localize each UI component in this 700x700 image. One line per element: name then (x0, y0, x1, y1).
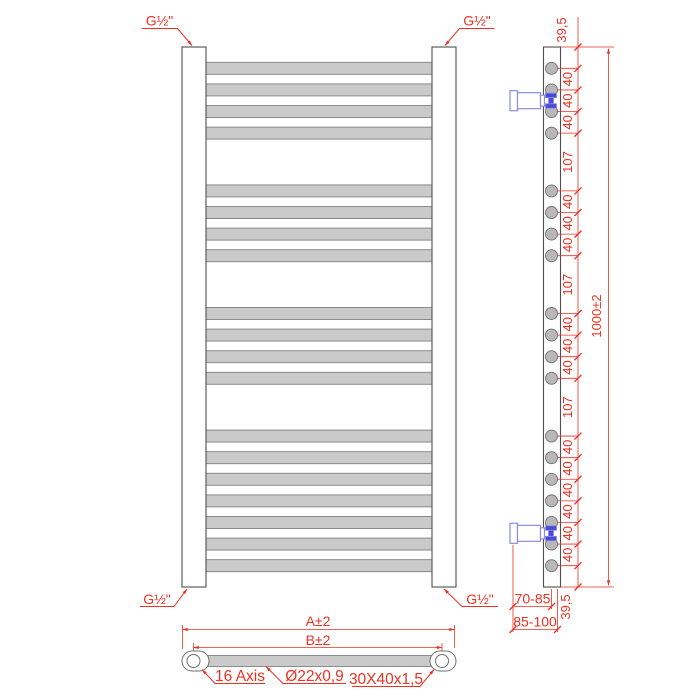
dimension-chain-label: 40 (560, 93, 575, 107)
wall-distance-min-label: 70-85 (515, 591, 551, 607)
towel-tube (206, 372, 433, 384)
dimension-chain-label: 40 (560, 360, 575, 374)
tube-cross-section (546, 560, 558, 572)
towel-tube (206, 495, 433, 507)
dimension-chain-label: 107 (560, 151, 575, 173)
fitting-label-bottom-right: G½" (466, 591, 494, 607)
tube-cross-section (546, 495, 558, 507)
towel-tube (206, 516, 433, 528)
valve-fitting-bottom (510, 523, 557, 543)
axis-note-label: 16 Axis (215, 668, 265, 685)
dimension-chain-label: 40 (560, 238, 575, 252)
towel-tube (206, 185, 433, 197)
towel-tube (206, 560, 433, 572)
tube-cross-section (546, 430, 558, 442)
left-collector-rail (182, 47, 206, 587)
towel-tube (206, 127, 433, 139)
dimension-chain-label: 40 (560, 440, 575, 454)
dimension-chain-label: 40 (560, 483, 575, 497)
plan-view-tube (208, 656, 434, 667)
front-view-towel-bars (206, 62, 433, 571)
towel-tube (206, 106, 433, 118)
towel-tube (206, 62, 433, 74)
dimension-chain-label: 40 (560, 548, 575, 562)
towel-tube (206, 84, 433, 96)
dimension-chain-label: 40 (560, 526, 575, 540)
tube-cross-section (546, 351, 558, 363)
dimension-chain-label: 39,5 (554, 17, 569, 42)
dimension-chain-label: 40 (560, 216, 575, 230)
dimension-chain-label: 40 (560, 339, 575, 353)
tube-cross-section (546, 473, 558, 485)
tube-cross-section (546, 62, 558, 74)
profile-spec-label: 30X40x1,5 (349, 671, 423, 688)
drawing-canvas: G½" G½" G½" G½" 39,540404010740404010740… (0, 0, 700, 700)
tube-cross-section (546, 307, 558, 319)
dimension-chain-label: 40 (560, 115, 575, 129)
right-collector-rail (432, 47, 456, 587)
tube-cross-section (546, 372, 558, 384)
overall-width-label: A±2 (306, 613, 331, 629)
tube-spec-label: Ø22x0,9 (285, 668, 344, 685)
tube-cross-section (546, 452, 558, 464)
tube-cross-section (546, 127, 558, 139)
valve-fitting-top (510, 91, 557, 111)
plan-view-left-axis-hole (187, 655, 200, 668)
dimension-chain-label: 40 (560, 194, 575, 208)
towel-tube (206, 207, 433, 219)
tube-cross-section (546, 250, 558, 262)
towel-tube (206, 307, 433, 319)
towel-tube (206, 228, 433, 240)
dimension-chain-label: 40 (560, 317, 575, 331)
tube-cross-section (546, 329, 558, 341)
fitting-label-top-left: G½" (146, 13, 174, 29)
tube-cross-section (546, 228, 558, 240)
dimension-chain-label: 40 (560, 72, 575, 86)
towel-tube (206, 473, 433, 485)
leader-arrow-top-left (142, 29, 193, 46)
dimension-chain-label: 40 (560, 504, 575, 518)
towel-tube (206, 430, 433, 442)
towel-tube (206, 538, 433, 550)
tube-cross-section (546, 185, 558, 197)
towel-tube (206, 351, 433, 363)
towel-tube (206, 329, 433, 341)
dimension-chain-label: 107 (560, 274, 575, 296)
technical-drawing-towel-radiator: G½" G½" G½" G½" 39,540404010740404010740… (0, 0, 700, 700)
towel-tube (206, 250, 433, 262)
plan-view-right-axis-hole (436, 655, 449, 668)
towel-tube (206, 452, 433, 464)
wall-distance-max-label: 85-100 (513, 614, 557, 630)
axis-width-label: B±2 (306, 632, 331, 648)
fitting-label-bottom-left: G½" (143, 591, 171, 607)
tube-cross-section (546, 207, 558, 219)
fitting-label-top-right: G½" (463, 13, 491, 29)
leader-arrow-top-right (445, 29, 495, 46)
dimension-chain-label: 107 (560, 396, 575, 418)
dimension-chain-label: 39,5 (558, 594, 573, 619)
dimension-chain-label: 40 (560, 461, 575, 475)
overall-height-label: 1000±2 (589, 294, 604, 337)
